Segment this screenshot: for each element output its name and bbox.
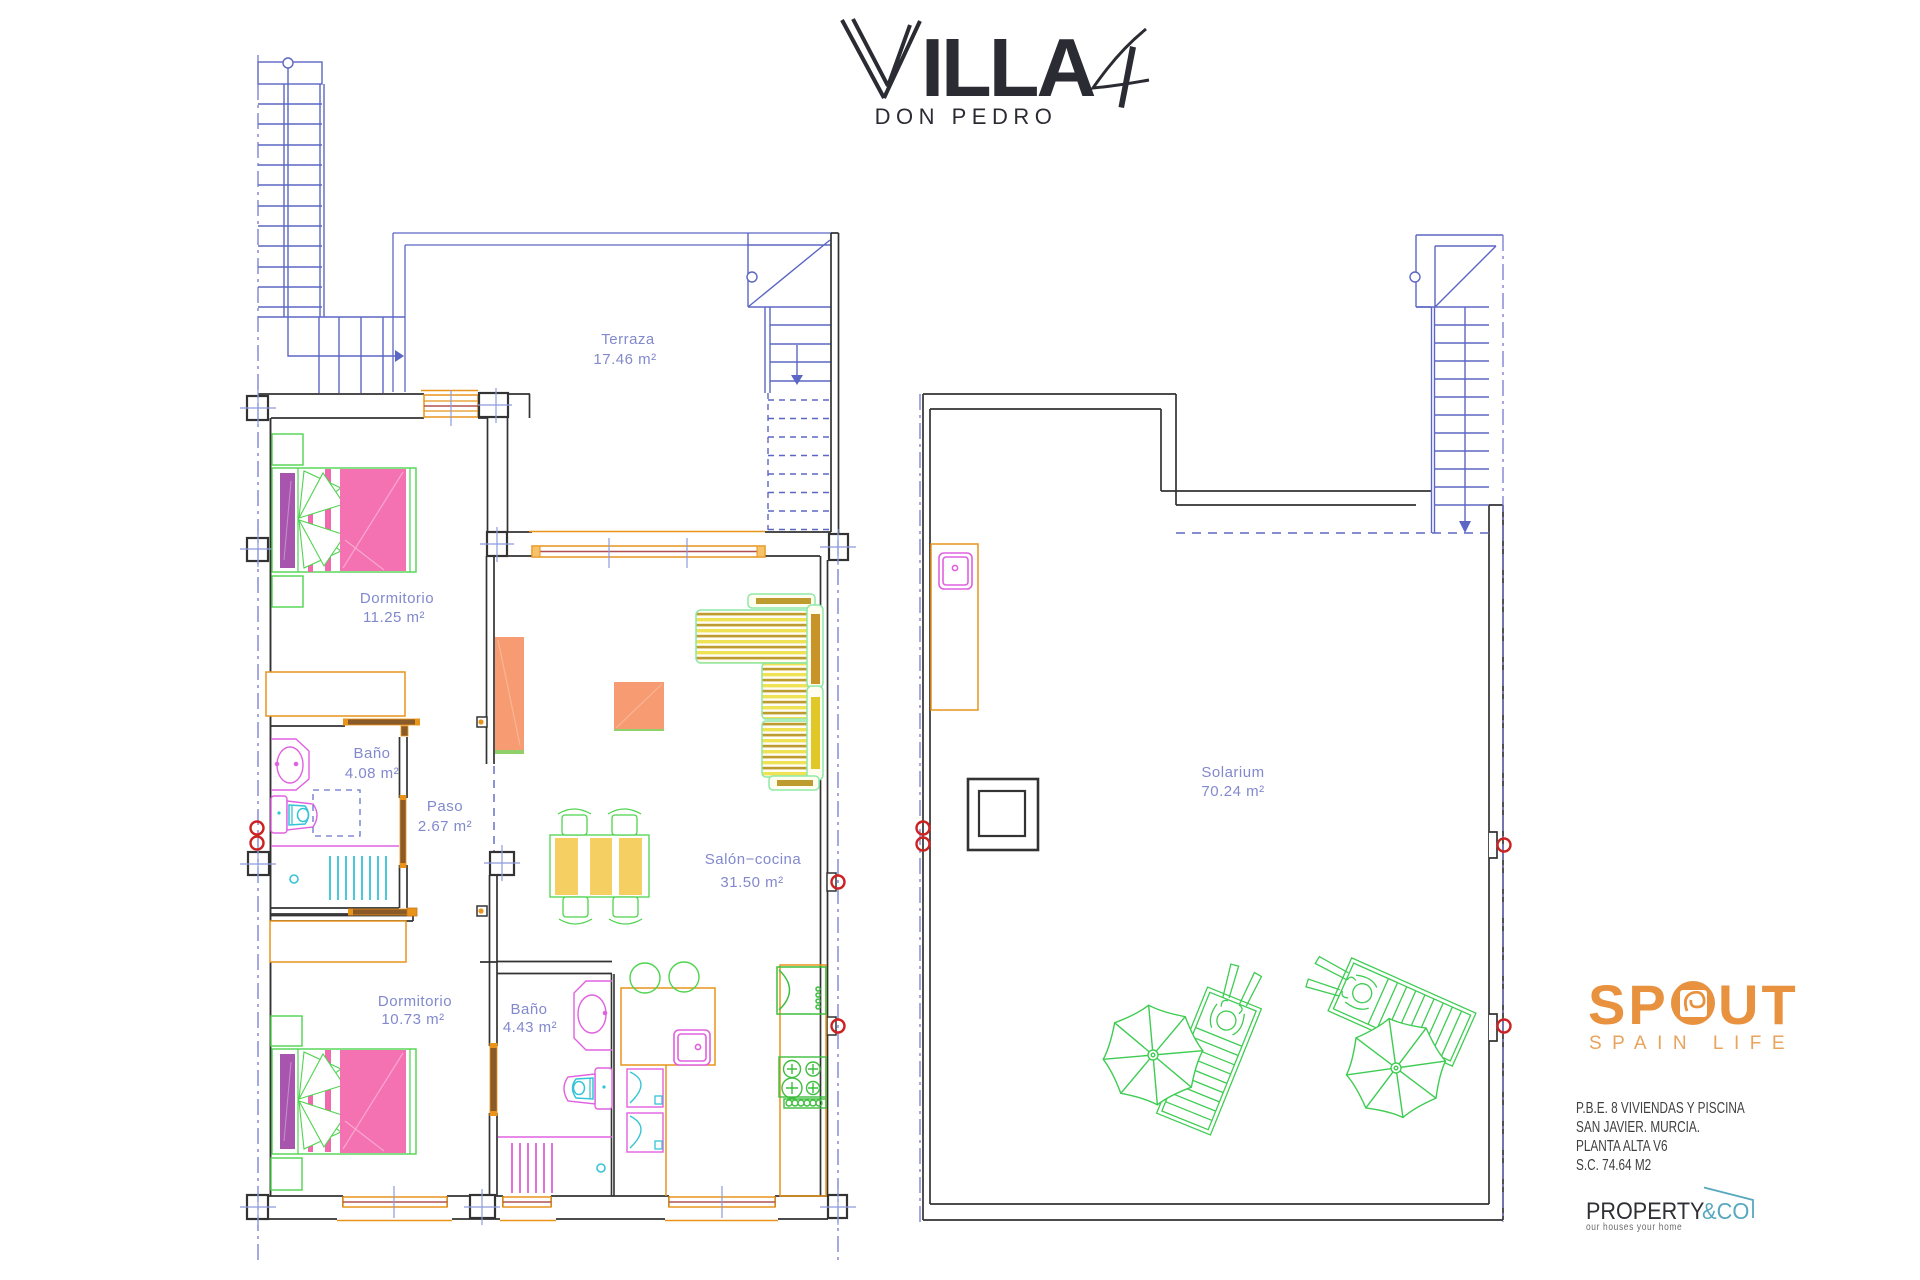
svg-text:P.B.E. 8 VIVIENDAS Y PISCINA: P.B.E. 8 VIVIENDAS Y PISCINA [1576, 1099, 1745, 1116]
svg-text:Solarium: Solarium [1201, 764, 1264, 781]
svg-text:Paso: Paso [427, 798, 463, 815]
svg-text:10.73 m²: 10.73 m² [381, 1011, 444, 1028]
svg-text:Dormitorio: Dormitorio [378, 993, 452, 1010]
svg-text:Dormitorio: Dormitorio [360, 590, 434, 607]
svg-text:PROPERTY: PROPERTY [1586, 1197, 1704, 1224]
svg-text:Terraza: Terraza [601, 331, 655, 348]
svg-text:UT: UT [1718, 973, 1799, 1036]
svg-text:Salón−cocina: Salón−cocina [705, 851, 802, 868]
svg-text:11.25 m²: 11.25 m² [363, 609, 425, 626]
svg-text:4.08 m²: 4.08 m² [345, 765, 399, 782]
svg-text:2.67 m²: 2.67 m² [418, 818, 472, 835]
svg-text:&CO: &CO [1702, 1197, 1749, 1224]
svg-text:SAN JAVIER. MURCIA.: SAN JAVIER. MURCIA. [1576, 1118, 1700, 1135]
svg-text:SPAIN LIFE: SPAIN LIFE [1589, 1033, 1795, 1054]
svg-text:Baño: Baño [353, 745, 390, 762]
svg-text:SP: SP [1588, 973, 1669, 1036]
svg-text:4.43 m²: 4.43 m² [503, 1019, 557, 1036]
svg-text:our houses your home: our houses your home [1586, 1221, 1682, 1233]
svg-text:31.50 m²: 31.50 m² [720, 874, 783, 891]
svg-text:PLANTA ALTA V6: PLANTA ALTA V6 [1576, 1137, 1668, 1154]
svg-text:ILLA: ILLA [921, 21, 1094, 114]
svg-text:Baño: Baño [510, 1001, 547, 1018]
svg-text:S.C. 74.64 M2: S.C. 74.64 M2 [1576, 1156, 1651, 1173]
svg-text:70.24 m²: 70.24 m² [1201, 783, 1264, 800]
svg-text:17.46 m²: 17.46 m² [593, 351, 656, 368]
svg-text:DON PEDRO: DON PEDRO [875, 104, 1058, 129]
